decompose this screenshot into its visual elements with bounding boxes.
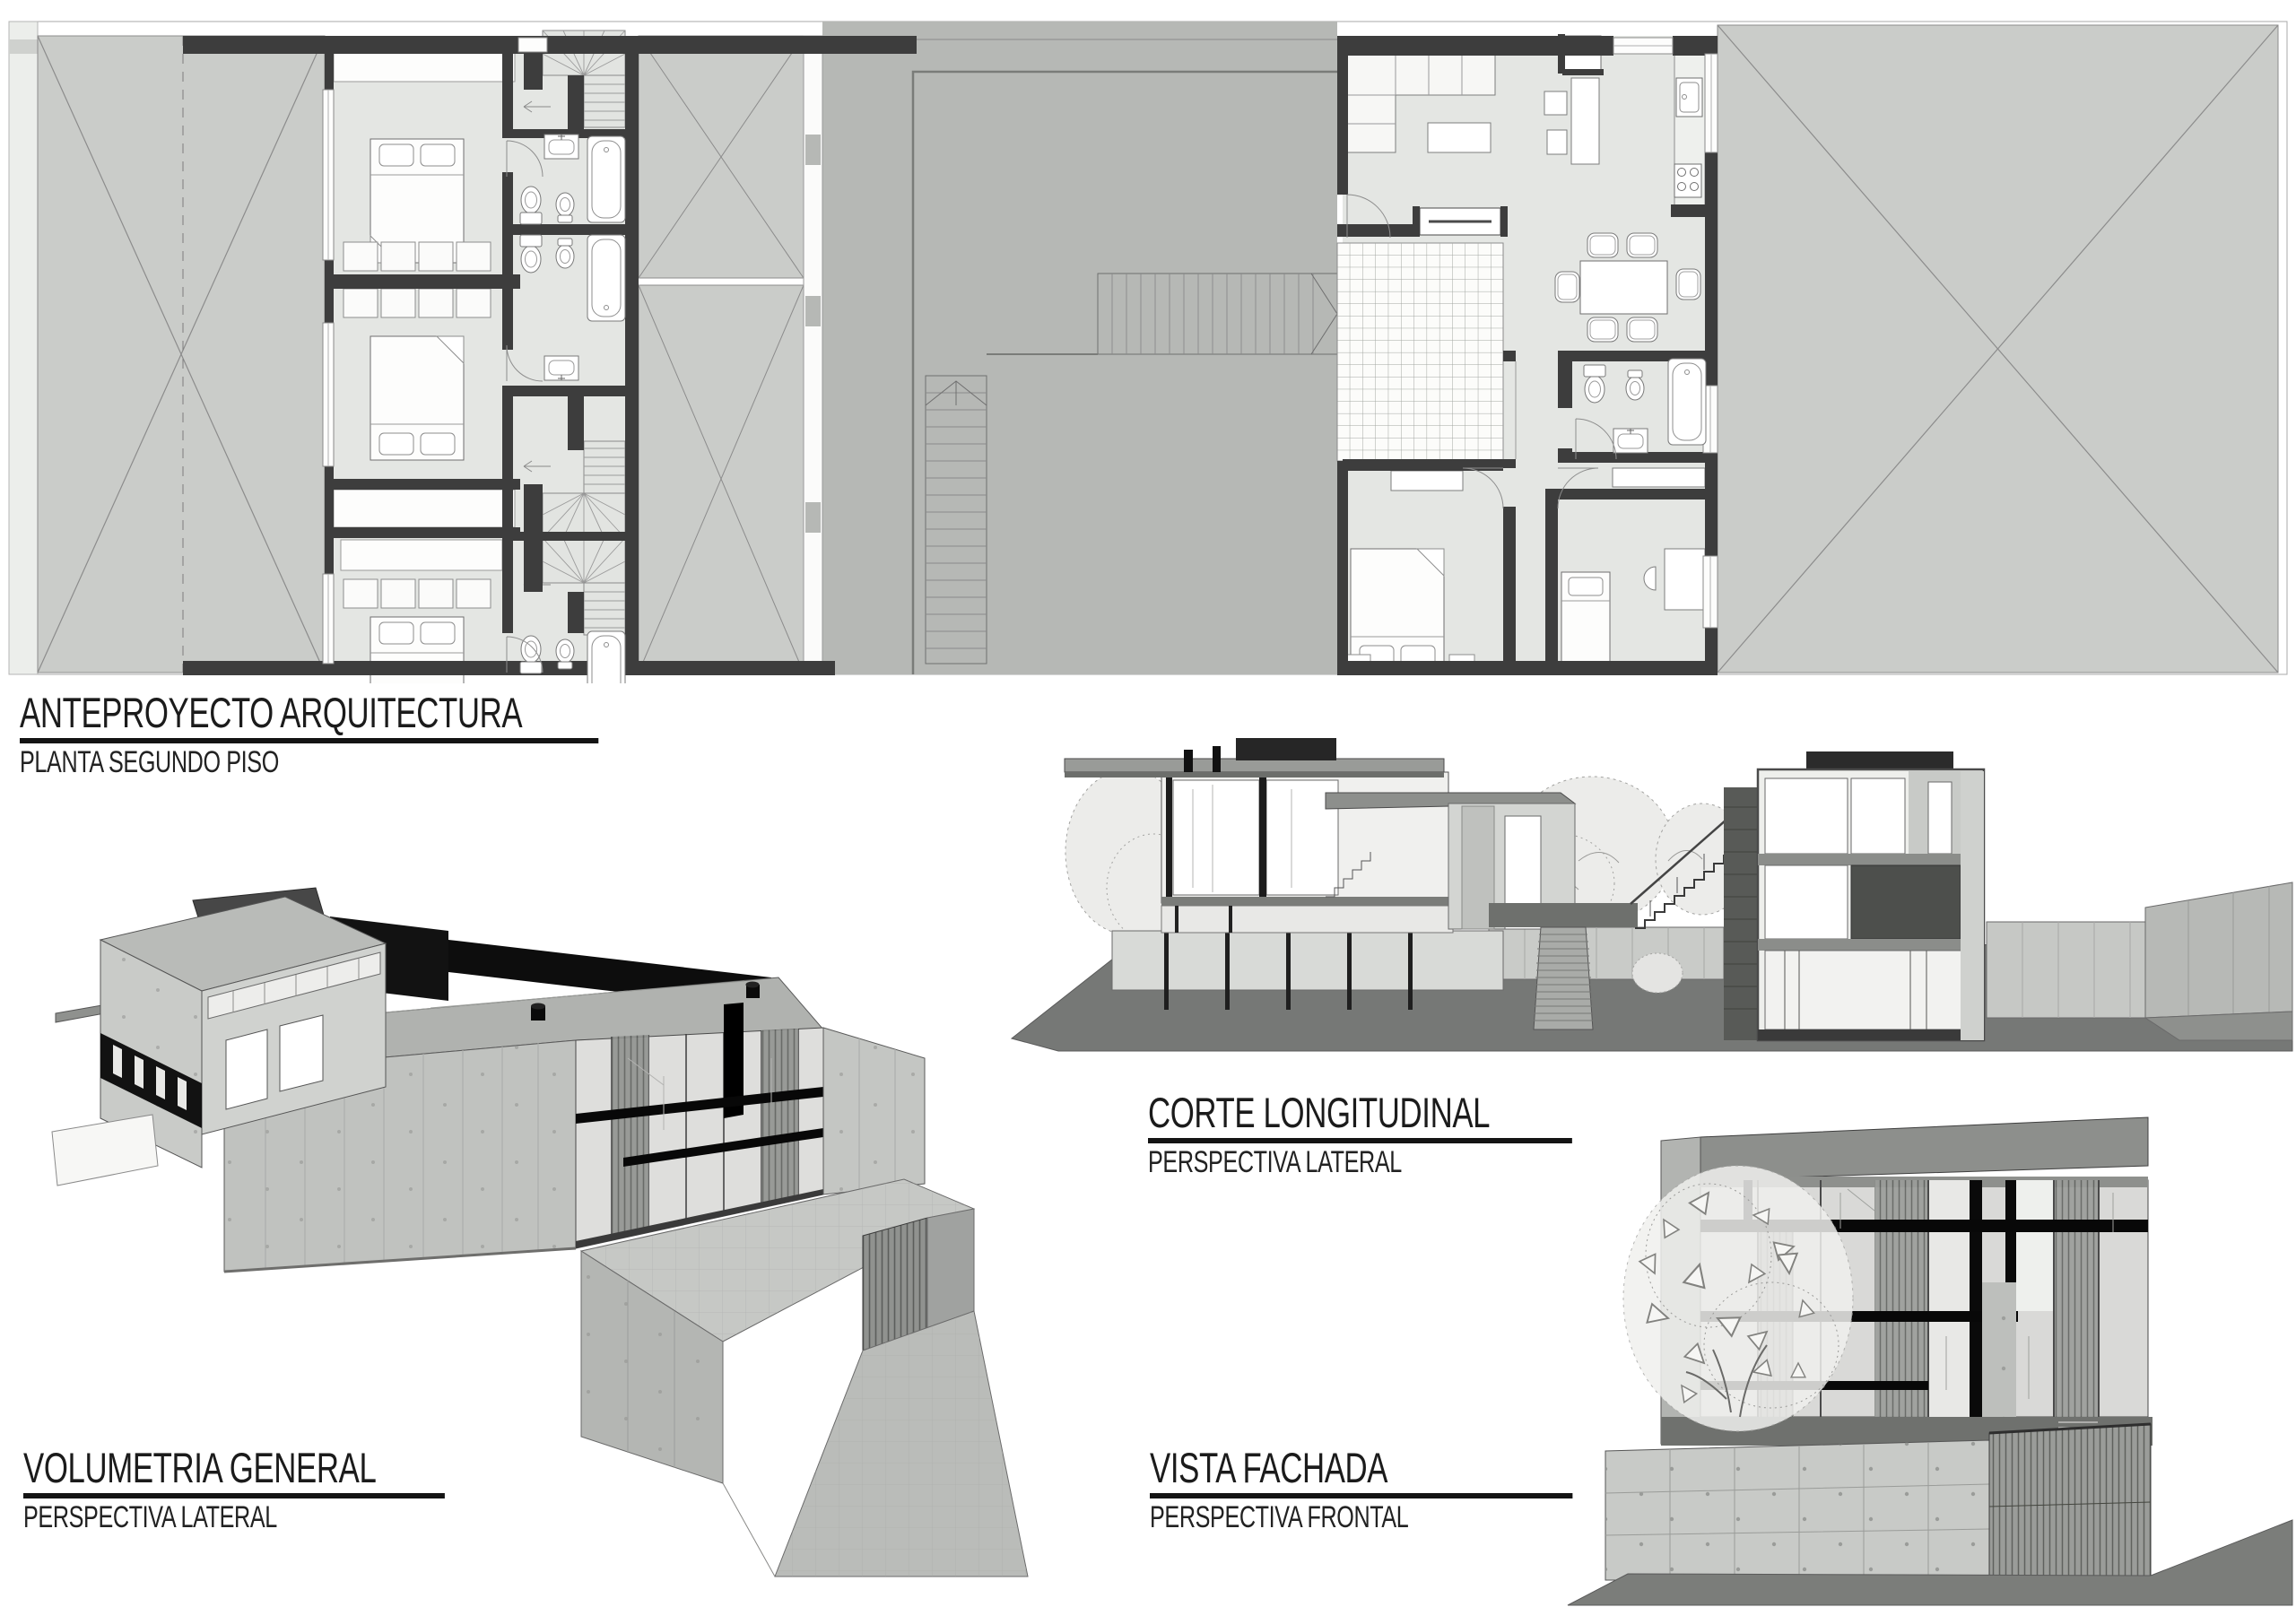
facade-view-figure — [1525, 1099, 2296, 1607]
crossed-lightwell-mid — [639, 36, 822, 673]
section-title: CORTE LONGITUDINAL — [1148, 1091, 1572, 1135]
section-subtitle: PERSPECTIVA LATERAL — [1148, 1146, 1572, 1179]
section-label: CORTE LONGITUDINAL PERSPECTIVA LATERAL — [1148, 1091, 1572, 1179]
floor-plan-title: ANTEPROYECTO ARQUITECTURA — [20, 691, 598, 735]
facade-slat-wall — [1989, 1424, 2151, 1584]
white-terrace-parapet — [52, 1115, 158, 1186]
central-roof-deck — [822, 22, 1337, 674]
section-title-underline — [1148, 1138, 1572, 1143]
concrete-side-face — [823, 1028, 925, 1194]
roof-stair-vertical — [926, 376, 987, 664]
floor-plan-label: ANTEPROYECTO ARQUITECTURA PLANTA SEGUNDO… — [20, 691, 598, 779]
facade-tree — [1623, 1166, 1853, 1431]
facade-subtitle: PERSPECTIVA FRONTAL — [1150, 1501, 1572, 1534]
facade-concrete-base — [1605, 1440, 1989, 1580]
facade-title-underline — [1150, 1493, 1572, 1498]
section-right-building — [1724, 751, 1984, 1040]
section-view-figure — [987, 731, 2296, 1058]
presentation-board: ANTEPROYECTO ARQUITECTURA PLANTA SEGUNDO… — [0, 0, 2296, 1607]
volumetry-title: VOLUMETRIA GENERAL — [23, 1446, 445, 1490]
roof-terrace-right-crossed — [1718, 25, 2278, 673]
facade-label: VISTA FACHADA PERSPECTIVA FRONTAL — [1150, 1446, 1572, 1534]
floor-plan-subtitle: PLANTA SEGUNDO PISO — [20, 746, 598, 779]
section-bush — [1632, 953, 1683, 993]
roof-terrace-left-crossed — [38, 36, 325, 673]
volumetry-title-underline — [23, 1493, 445, 1498]
facade-title: VISTA FACHADA — [1150, 1446, 1572, 1490]
volumetry-subtitle: PERSPECTIVA LATERAL — [23, 1501, 445, 1534]
floor-plan-title-underline — [20, 738, 598, 743]
floor-plan-figure — [0, 0, 2296, 683]
volumetry-label: VOLUMETRIA GENERAL PERSPECTIVA LATERAL — [23, 1446, 445, 1534]
terrace-garage-ramp — [581, 1179, 1028, 1577]
plan-left-margin-strip — [9, 22, 38, 674]
